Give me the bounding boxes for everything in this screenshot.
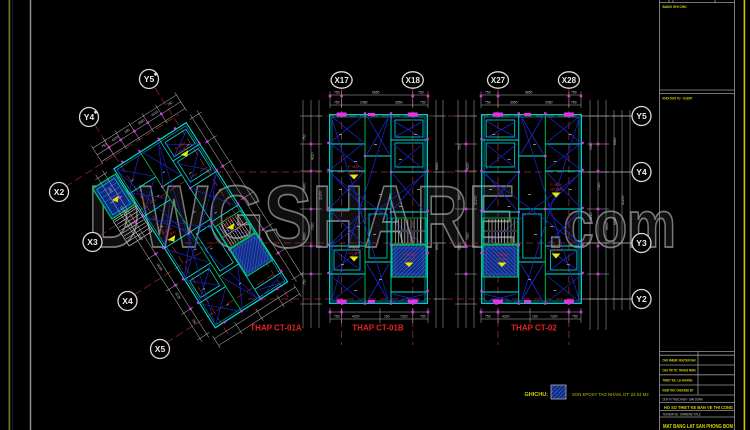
svg-text:6900: 6900 xyxy=(605,222,609,230)
svg-text:X3: X3 xyxy=(87,237,98,247)
svg-text:5850: 5850 xyxy=(372,91,380,95)
svg-text:6900: 6900 xyxy=(613,217,617,225)
svg-text:21200: 21200 xyxy=(621,195,625,205)
svg-text:6400: 6400 xyxy=(303,182,307,190)
svg-text:CHU NHIEM: NGUYEN VAN: CHU NHIEM: NGUYEN VAN xyxy=(663,358,696,363)
svg-text:750: 750 xyxy=(571,101,577,105)
svg-text:+87.800: +87.800 xyxy=(549,248,562,252)
svg-text:150: 150 xyxy=(532,315,538,319)
svg-text:1980: 1980 xyxy=(589,142,593,150)
svg-text:6900: 6900 xyxy=(303,232,307,240)
svg-text:750: 750 xyxy=(420,101,426,105)
svg-text:GHICHU:: GHICHU: xyxy=(524,392,548,398)
svg-text:750: 750 xyxy=(418,91,424,95)
svg-text:DON VI THUC HIEN - GIAI DOAN: DON VI THUC HIEN - GIAI DOAN xyxy=(663,398,703,402)
svg-text:7320: 7320 xyxy=(400,315,408,319)
svg-text:7320: 7320 xyxy=(550,315,558,319)
svg-text:6400: 6400 xyxy=(435,162,439,170)
svg-text:MAT BANG LAT SAN PHONG BOM: MAT BANG LAT SAN PHONG BOM xyxy=(663,424,733,430)
svg-text:P. BOM: P. BOM xyxy=(496,253,508,257)
svg-text:Y5: Y5 xyxy=(144,74,155,84)
svg-text:6400: 6400 xyxy=(458,192,462,200)
svg-text:Y5: Y5 xyxy=(636,111,647,121)
svg-text:6900: 6900 xyxy=(458,242,462,250)
svg-text:150: 150 xyxy=(384,315,390,319)
svg-text:+87.800: +87.800 xyxy=(549,187,562,191)
svg-text:CHU TRI TK: TRAN B MINH: CHU TRI TK: TRAN B MINH xyxy=(663,368,696,373)
svg-text:THAP CT-02: THAP CT-02 xyxy=(511,324,557,333)
svg-text:750: 750 xyxy=(334,101,340,105)
svg-text:X28: X28 xyxy=(562,76,577,85)
svg-text:P. MAY: P. MAY xyxy=(348,165,360,169)
svg-text:X17: X17 xyxy=(334,76,349,85)
svg-text:X18: X18 xyxy=(406,76,421,85)
svg-text:+67.500: +67.500 xyxy=(496,257,508,261)
svg-text:DWGSHARE: DWGSHARE xyxy=(88,167,516,266)
svg-text:KHOI DAU TU - CLIENT: KHOI DAU TU - CLIENT xyxy=(663,97,693,101)
svg-text:750: 750 xyxy=(334,315,340,319)
svg-text:750: 750 xyxy=(571,91,577,95)
svg-text:750: 750 xyxy=(334,91,340,95)
svg-text:P. MAY: P. MAY xyxy=(550,244,562,248)
svg-text:HO SO THIET KE BAN VE THI CONG: HO SO THIET KE BAN VE THI CONG xyxy=(664,405,733,410)
svg-text:21200: 21200 xyxy=(319,190,323,200)
svg-text:750: 750 xyxy=(485,101,491,105)
svg-text:750: 750 xyxy=(485,91,491,95)
svg-text:750: 750 xyxy=(303,134,307,140)
svg-text:P. MAY: P. MAY xyxy=(348,247,360,251)
svg-text:THAP CT-01B: THAP CT-01B xyxy=(352,324,404,333)
svg-text:SON EPOXY TAO NHAM, DT: 23.04: SON EPOXY TAO NHAM, DT: 23.04 M2 xyxy=(572,392,649,397)
svg-text:4220: 4220 xyxy=(311,152,315,160)
svg-text:Y2: Y2 xyxy=(636,294,647,304)
svg-text:Y4: Y4 xyxy=(636,167,647,177)
svg-text:750: 750 xyxy=(303,279,307,285)
svg-text:P. MAY: P. MAY xyxy=(550,183,562,187)
svg-text:4220: 4220 xyxy=(466,162,470,170)
svg-text:3950: 3950 xyxy=(510,101,518,105)
svg-text:P. BOM: P. BOM xyxy=(403,253,415,257)
svg-text:21200: 21200 xyxy=(474,195,478,205)
svg-text:BANG GHI CHU: BANG GHI CHU xyxy=(663,5,687,9)
svg-text:X2: X2 xyxy=(54,187,65,197)
svg-text:750: 750 xyxy=(458,144,462,150)
svg-text:+67.500: +67.500 xyxy=(403,257,415,261)
svg-text:2080: 2080 xyxy=(360,101,368,105)
svg-text:4220: 4220 xyxy=(352,315,360,319)
svg-text:750: 750 xyxy=(572,315,578,319)
svg-text:X4: X4 xyxy=(122,296,133,306)
svg-text:7320: 7320 xyxy=(311,222,315,230)
svg-text:4220: 4220 xyxy=(502,315,510,319)
svg-text:THAP CT-01A: THAP CT-01A xyxy=(250,324,302,333)
svg-text:Y3: Y3 xyxy=(636,238,647,248)
svg-text:KIEM TRA: CHECKED BY: KIEM TRA: CHECKED BY xyxy=(663,388,694,393)
svg-text:THIET KE: LE HOANG: THIET KE: LE HOANG xyxy=(663,378,693,383)
svg-text:+87.800: +87.800 xyxy=(347,251,360,255)
svg-text:3950: 3950 xyxy=(395,101,403,105)
svg-text:Y4: Y4 xyxy=(84,112,95,122)
svg-text:5850: 5850 xyxy=(525,91,533,95)
svg-text:6400: 6400 xyxy=(613,137,617,145)
svg-text:X5: X5 xyxy=(155,344,166,354)
svg-text:7320: 7320 xyxy=(466,232,470,240)
svg-text:7320: 7320 xyxy=(597,182,601,190)
svg-text:2080: 2080 xyxy=(545,101,553,105)
svg-text:750: 750 xyxy=(420,315,426,319)
svg-text:+87.800: +87.800 xyxy=(347,169,360,173)
svg-text:X27: X27 xyxy=(491,76,506,85)
svg-text:TEN BAN VE - DRAWING TITLE: TEN BAN VE - DRAWING TITLE xyxy=(663,413,702,417)
svg-text:750: 750 xyxy=(485,315,491,319)
svg-text:4220: 4220 xyxy=(589,212,593,220)
svg-text:6900: 6900 xyxy=(435,242,439,250)
